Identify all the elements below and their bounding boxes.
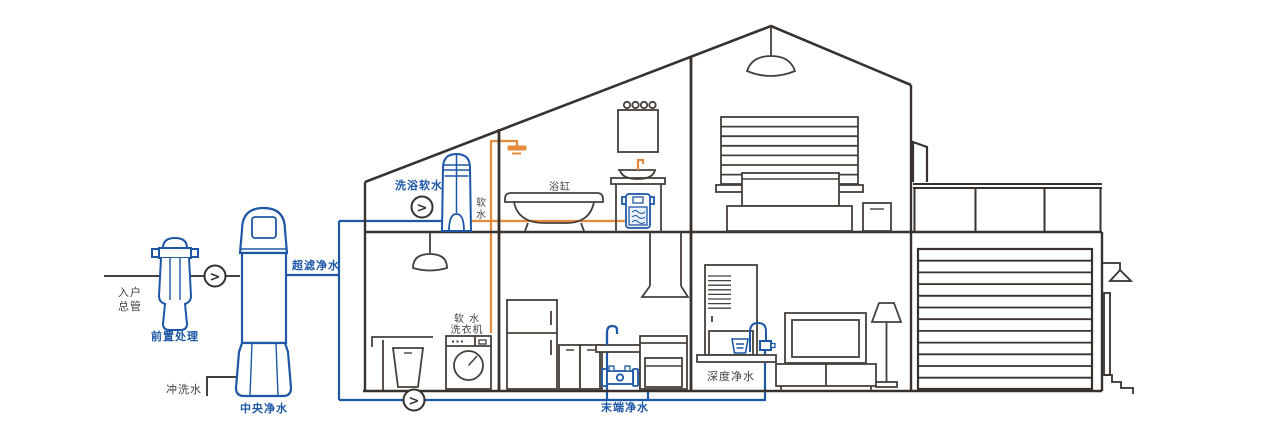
diagram-canvas: > > > 入户 总管 前置处理 中央净水 超滤净水 冲洗水 洗浴软水 软水 浴…	[0, 0, 1280, 434]
garage-door-slats	[918, 261, 1092, 378]
vanity-faucet-icon	[638, 160, 643, 170]
kitchen-faucet-icon	[607, 326, 617, 345]
bedroom	[716, 26, 891, 231]
label-terminal-purifier: 末端净水	[600, 400, 649, 414]
bed	[727, 206, 852, 231]
label-pre-treatment: 前置处理	[151, 329, 199, 343]
oven-cabinet	[640, 336, 687, 389]
label-deep-purifier: 深度净水	[707, 369, 755, 383]
flow-icon-attic: >	[412, 197, 433, 218]
bathroom	[505, 102, 665, 233]
bed-headboard	[742, 173, 839, 206]
whole-house-water-purification-diagram: > > > 入户 总管 前置处理 中央净水 超滤净水 冲洗水 洗浴软水 软水 浴…	[0, 0, 1280, 434]
roof-railing	[913, 184, 1102, 231]
entry-steps	[1104, 375, 1133, 394]
range-hood	[642, 232, 688, 297]
mirror	[618, 110, 658, 152]
roof-parapet	[913, 142, 927, 182]
garage	[913, 142, 1133, 394]
garage-wall-lamp-icon	[1102, 263, 1131, 281]
central-purifier-tank	[236, 208, 291, 396]
shower-head-icon	[508, 146, 526, 154]
label-ultrafiltration: 超滤净水	[291, 258, 340, 272]
mirror-lights	[624, 102, 656, 108]
utility-sink-basin	[393, 348, 423, 387]
television[interactable]	[785, 313, 866, 363]
pre-treatment-filter	[152, 238, 198, 330]
nightstand	[863, 203, 891, 231]
undersink-purifier-unit	[622, 194, 654, 228]
label-inlet-main-2: 总管	[118, 299, 142, 313]
terminal-purifier-unit	[602, 366, 638, 386]
label-soft-water: 软水	[474, 196, 486, 221]
flow-arrow-glyph: >	[409, 394, 420, 409]
label-soft-washer-2: 洗衣机	[451, 323, 484, 336]
flow-arrow-glyph: >	[417, 201, 428, 216]
label-flush-water: 冲洗水	[166, 382, 202, 396]
bathtub	[505, 193, 603, 231]
flow-arrow-glyph: >	[210, 270, 221, 285]
bath-softener-unit	[442, 154, 471, 231]
drain-pipe	[1104, 293, 1110, 375]
dispenser-valve	[760, 341, 771, 350]
label-central-purifier: 中央净水	[240, 401, 288, 415]
kitchen	[507, 232, 688, 389]
washing-machine[interactable]	[446, 336, 491, 389]
laundry-room	[372, 232, 491, 390]
label-inlet-main-1: 入户	[118, 285, 142, 299]
refrigerator[interactable]	[507, 300, 557, 389]
label-soft-washer-1: 软 水	[454, 312, 480, 325]
flow-icon-ground: >	[404, 390, 425, 411]
tv-stand	[776, 364, 876, 391]
label-bath-softener: 洗浴软水	[395, 178, 443, 192]
pendant-lamp-laundry	[413, 232, 447, 271]
label-bathtub: 浴缸	[549, 180, 571, 193]
flow-icon-inlet: >	[205, 266, 226, 287]
